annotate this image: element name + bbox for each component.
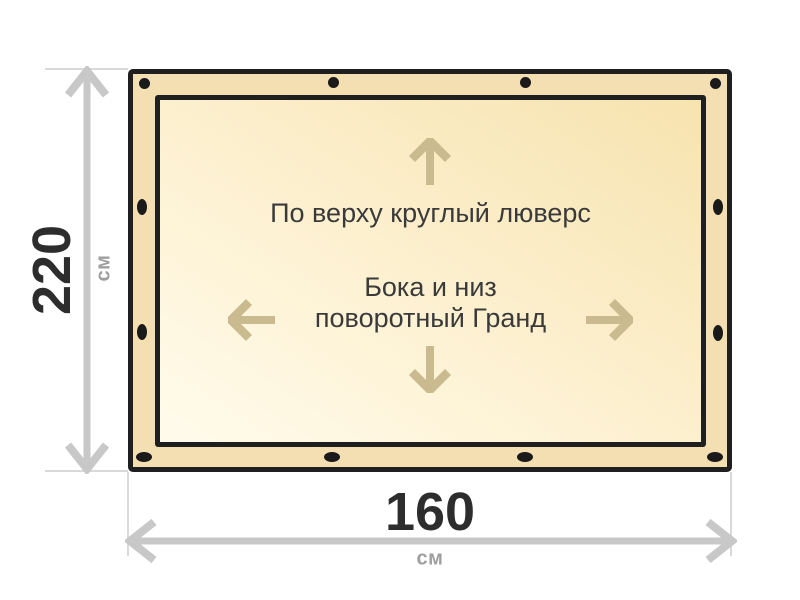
banner-outer: По верху круглый люверс Бока и низ повор… [128,69,732,472]
grommet-icon [713,199,723,215]
height-unit-label: см [93,255,116,282]
grommet-icon [137,324,147,340]
width-value-label: 160 [385,481,475,543]
top-note-label: По верху круглый люверс [160,199,701,227]
grommet-icon [713,325,723,341]
grommet-icon [707,452,723,462]
arrow-up-icon [408,138,452,188]
grommet-icon [520,77,531,88]
grommet-icon [517,452,533,462]
arrow-down-icon [408,343,452,393]
center-note-line1: Бока и низ [160,272,701,303]
grommet-icon [139,78,150,89]
grommet-icon [324,452,340,462]
grommet-icon [710,78,721,89]
grommet-icon [137,199,147,215]
grommet-icon [328,77,339,88]
grommet-icon [136,452,152,462]
banner-inner: По верху круглый люверс Бока и низ повор… [155,95,706,447]
height-value-label: 220 [21,225,83,315]
width-unit-label: см [417,548,444,571]
banner-size-diagram: 220 см 160 см [0,0,800,600]
center-note-label: Бока и низ поворотный Гранд [160,272,701,334]
center-note-line2: поворотный Гранд [160,303,701,334]
